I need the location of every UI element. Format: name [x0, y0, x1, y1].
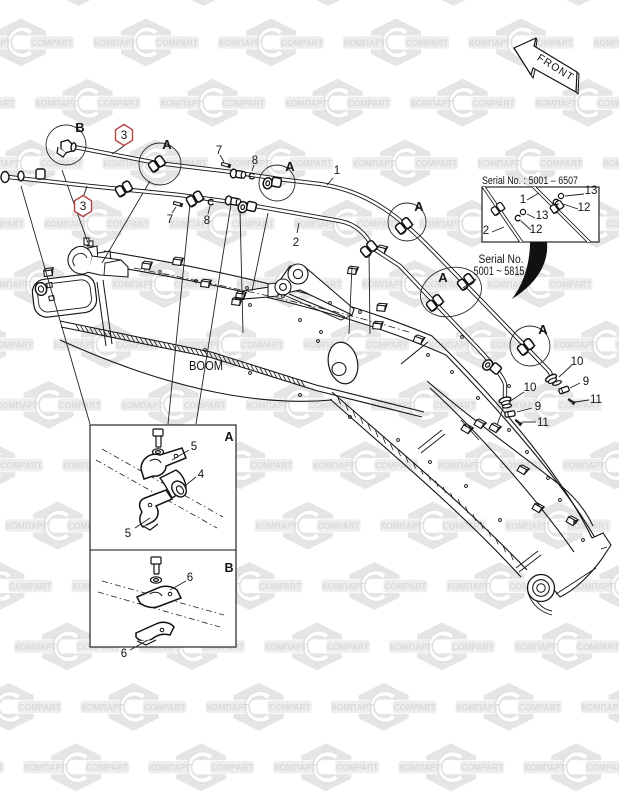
svg-text:9: 9 — [583, 376, 589, 388]
svg-text:5: 5 — [191, 441, 197, 453]
svg-text:B: B — [75, 120, 84, 135]
svg-text:13: 13 — [536, 210, 549, 222]
svg-text:6: 6 — [187, 572, 193, 584]
svg-text:5: 5 — [125, 528, 131, 540]
svg-text:2: 2 — [293, 237, 299, 249]
svg-text:Serial No. : 5001 – 6507: Serial No. : 5001 – 6507 — [482, 175, 578, 187]
svg-text:Serial No.: Serial No. — [479, 254, 524, 266]
svg-text:3: 3 — [80, 199, 87, 213]
svg-text:A: A — [414, 199, 424, 214]
svg-text:A: A — [224, 430, 233, 444]
svg-text:11: 11 — [590, 394, 602, 406]
svg-text:12: 12 — [530, 224, 543, 236]
svg-text:A: A — [162, 137, 172, 152]
svg-text:10: 10 — [571, 356, 584, 368]
svg-text:A: A — [538, 322, 548, 337]
svg-text:1: 1 — [334, 165, 340, 177]
svg-text:B: B — [224, 561, 233, 575]
svg-text:7: 7 — [167, 214, 173, 226]
svg-text:13: 13 — [585, 185, 598, 197]
svg-text:6: 6 — [121, 648, 127, 660]
svg-text:8: 8 — [252, 155, 258, 167]
svg-text:1: 1 — [520, 194, 526, 206]
svg-text:4: 4 — [198, 469, 205, 481]
svg-text:2: 2 — [483, 225, 489, 237]
svg-text:12: 12 — [578, 202, 591, 214]
svg-text:9: 9 — [535, 401, 541, 413]
svg-text:A: A — [438, 270, 448, 285]
svg-text:10: 10 — [524, 382, 537, 394]
svg-text:7: 7 — [216, 145, 222, 157]
svg-text:A: A — [285, 159, 295, 174]
svg-text:8: 8 — [204, 215, 210, 227]
svg-text:11: 11 — [537, 417, 549, 429]
svg-text:5001 ~ 5815: 5001 ~ 5815 — [474, 266, 525, 278]
svg-text:3: 3 — [121, 128, 128, 142]
